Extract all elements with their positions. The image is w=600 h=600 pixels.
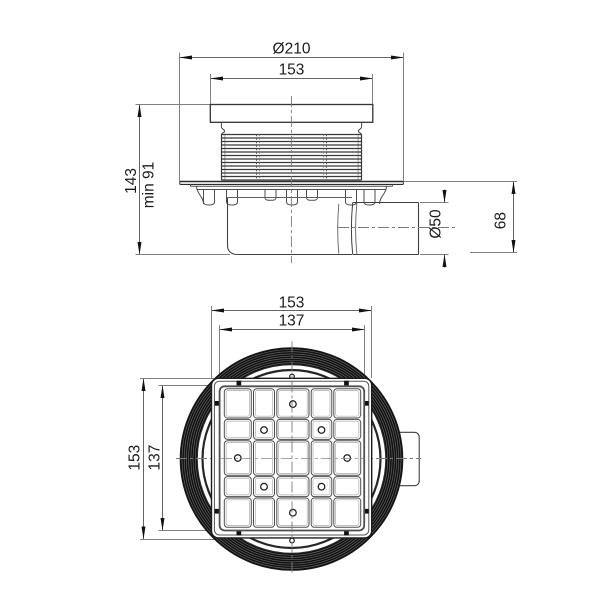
svg-text:137: 137 xyxy=(279,313,305,330)
svg-text:153: 153 xyxy=(279,62,305,79)
svg-text:137: 137 xyxy=(146,445,163,471)
svg-text:Ø50: Ø50 xyxy=(428,209,445,239)
svg-text:min 91: min 91 xyxy=(141,162,158,209)
svg-text:68: 68 xyxy=(493,212,510,229)
svg-text:153: 153 xyxy=(279,294,305,311)
svg-text:143: 143 xyxy=(123,168,140,194)
svg-text:Ø210: Ø210 xyxy=(273,41,311,58)
svg-text:153: 153 xyxy=(127,445,144,471)
